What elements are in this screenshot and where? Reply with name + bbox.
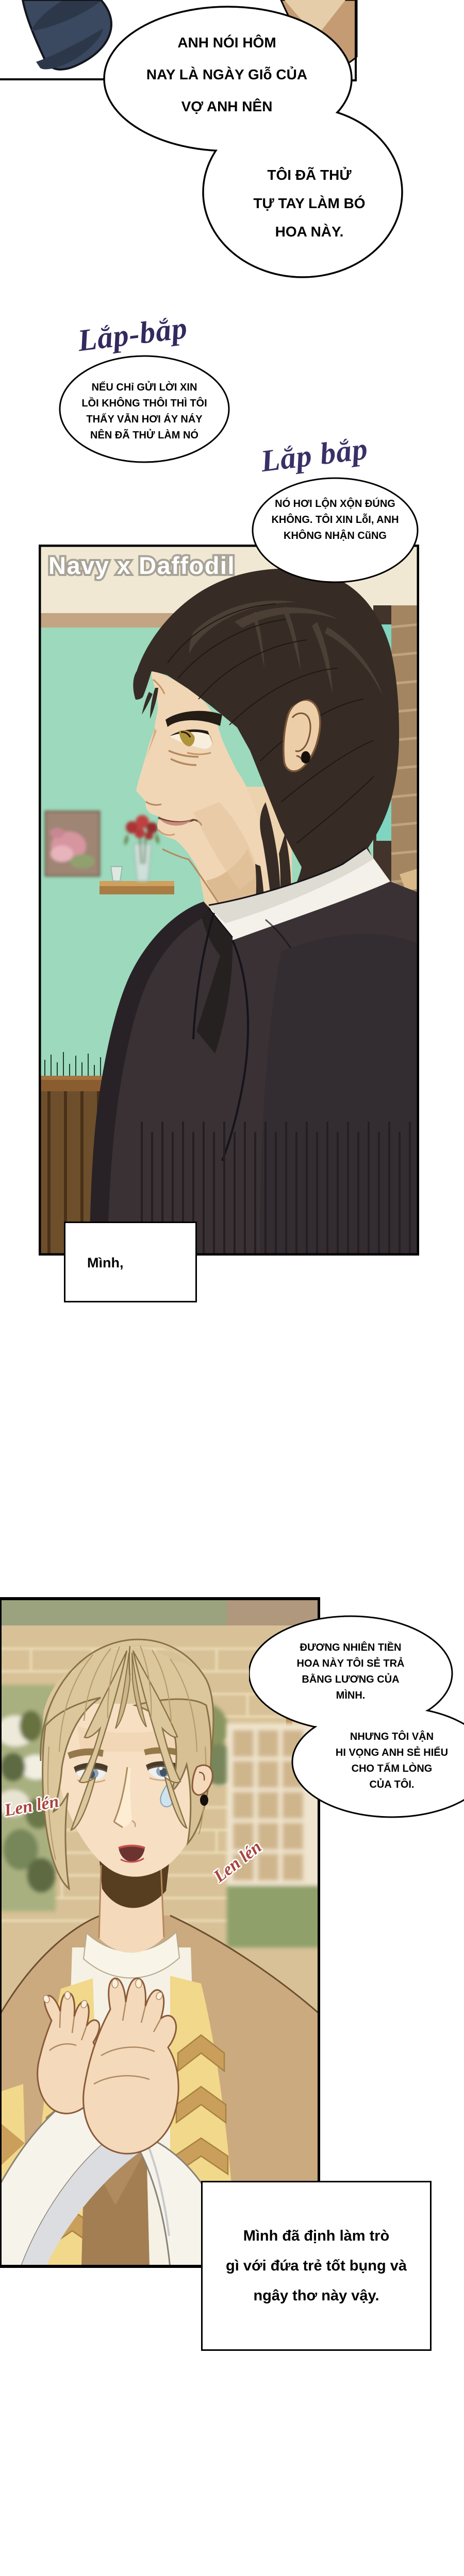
svg-text:Navy x Daffodil: Navy x Daffodil bbox=[48, 552, 235, 579]
